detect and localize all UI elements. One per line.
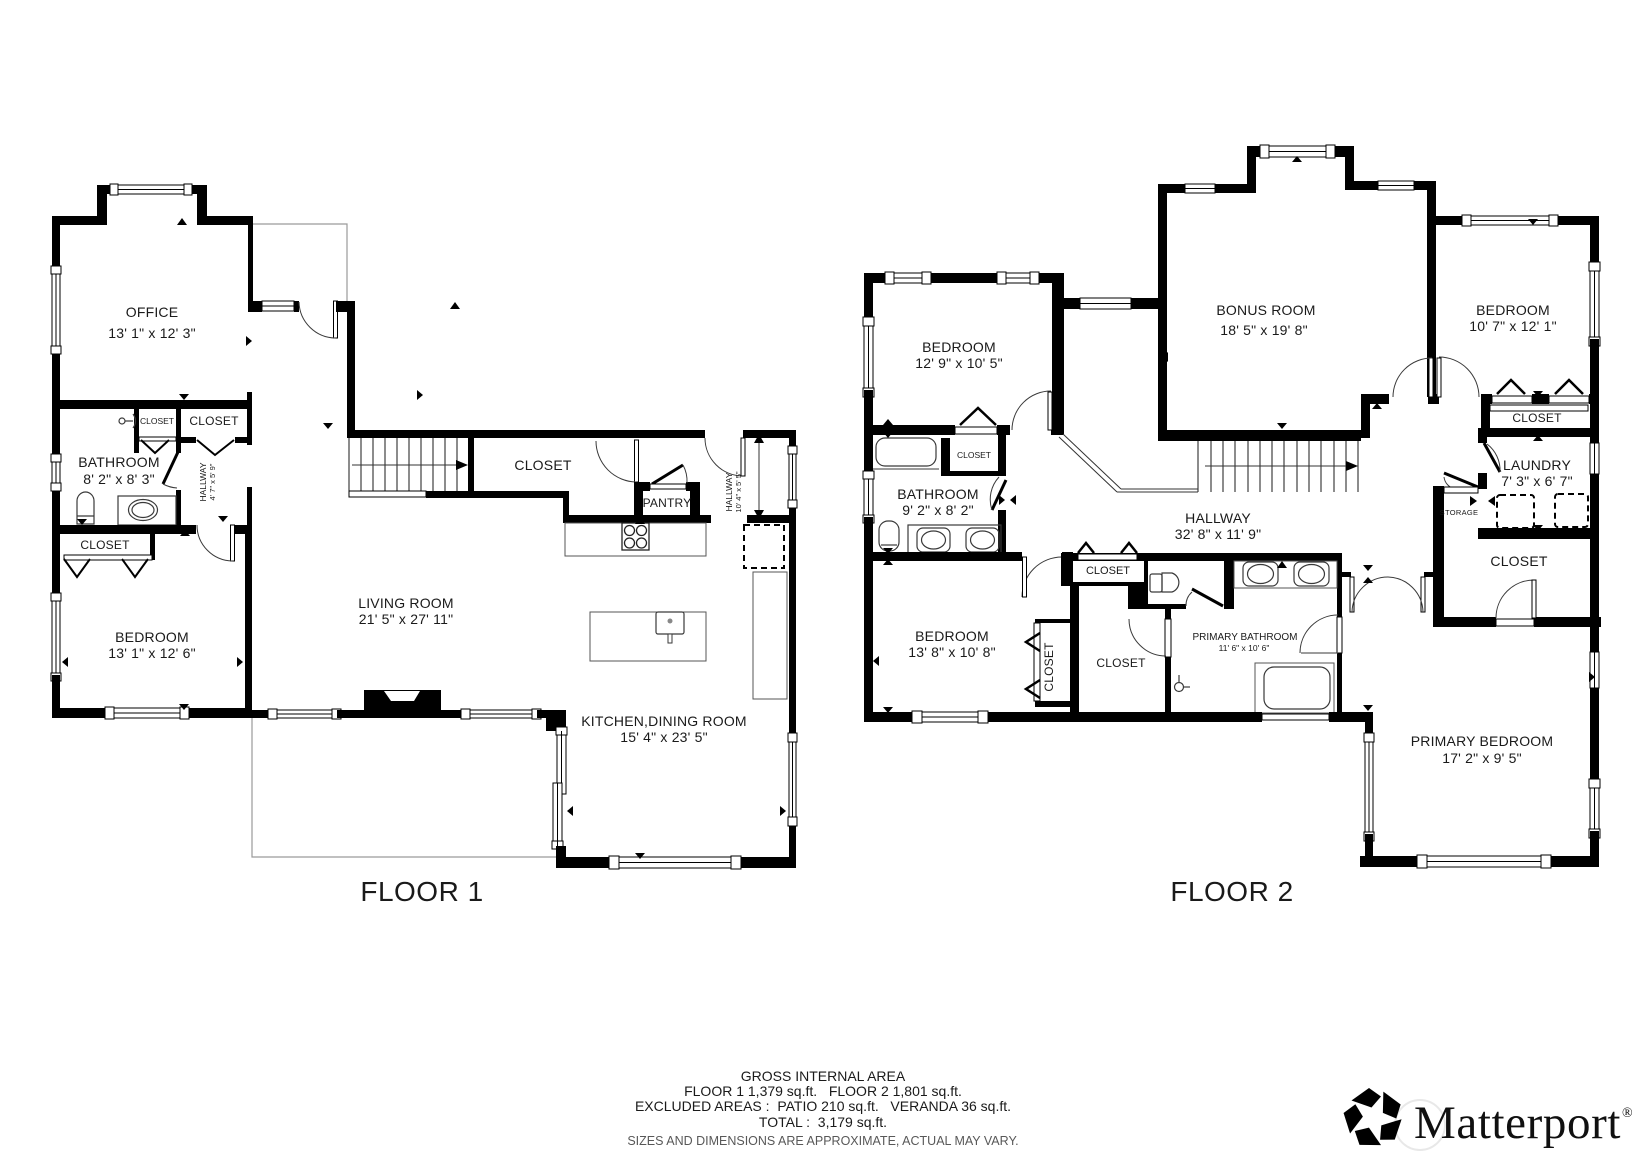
- svg-text:10' 4" x 5' 5": 10' 4" x 5' 5": [734, 471, 743, 512]
- svg-text:10' 7" x 12' 1": 10' 7" x 12' 1": [1469, 318, 1557, 334]
- svg-text:FLOOR 2: FLOOR 2: [1170, 876, 1293, 907]
- svg-text:HALLWAY: HALLWAY: [1185, 510, 1251, 526]
- svg-text:CLOSET: CLOSET: [1512, 411, 1562, 425]
- svg-text:CLOSET: CLOSET: [80, 538, 130, 552]
- svg-text:BEDROOM: BEDROOM: [1476, 302, 1550, 318]
- svg-text:PANTRY: PANTRY: [643, 496, 692, 510]
- svg-text:13' 1" x 12' 6": 13' 1" x 12' 6": [108, 645, 196, 661]
- svg-text:13' 8" x 10' 8": 13' 8" x 10' 8": [908, 644, 996, 660]
- svg-text:12' 9" x 10' 5": 12' 9" x 10' 5": [915, 355, 1003, 371]
- svg-text:HALLWAY: HALLWAY: [198, 462, 208, 501]
- svg-text:FLOOR 1 1,379 sq.ft. FLOOR 2: FLOOR 1 1,379 sq.ft. FLOOR 2 1,801 sq.ft…: [684, 1083, 962, 1099]
- svg-text:LAUNDRY: LAUNDRY: [1503, 457, 1572, 473]
- svg-text:PRIMARY BATHROOM: PRIMARY BATHROOM: [1192, 632, 1297, 643]
- svg-text:HALLWAY: HALLWAY: [724, 472, 734, 511]
- svg-text:KITCHEN,DINING ROOM: KITCHEN,DINING ROOM: [581, 713, 747, 729]
- svg-text:BATHROOM: BATHROOM: [78, 454, 159, 470]
- svg-text:STORAGE: STORAGE: [1440, 508, 1479, 517]
- svg-text:CLOSET: CLOSET: [1042, 642, 1056, 692]
- svg-text:SIZES AND DIMENSIONS ARE APPRO: SIZES AND DIMENSIONS ARE APPROXIMATE, AC…: [627, 1134, 1018, 1148]
- svg-text:13' 1" x 12' 3": 13' 1" x 12' 3": [108, 325, 196, 341]
- svg-text:GROSS INTERNAL AREA: GROSS INTERNAL AREA: [741, 1068, 906, 1084]
- svg-text:8' 2" x 8' 3": 8' 2" x 8' 3": [83, 471, 155, 487]
- svg-text:CLOSET: CLOSET: [1490, 553, 1547, 569]
- svg-text:Matterport: Matterport: [1414, 1097, 1621, 1149]
- svg-text:PRIMARY BEDROOM: PRIMARY BEDROOM: [1411, 733, 1554, 749]
- svg-text:BONUS ROOM: BONUS ROOM: [1216, 302, 1315, 318]
- svg-text:21' 5" x 27' 11": 21' 5" x 27' 11": [359, 611, 454, 627]
- svg-text:18' 5" x 19' 8": 18' 5" x 19' 8": [1220, 322, 1308, 338]
- svg-text:11' 6" x 10' 6": 11' 6" x 10' 6": [1219, 643, 1270, 653]
- svg-text:OFFICE: OFFICE: [126, 304, 179, 320]
- svg-text:CLOSET: CLOSET: [514, 457, 571, 473]
- svg-text:®: ®: [1622, 1106, 1633, 1121]
- svg-text:CLOSET: CLOSET: [1086, 565, 1130, 577]
- svg-text:FLOOR 1: FLOOR 1: [360, 876, 483, 907]
- svg-text:CLOSET: CLOSET: [189, 414, 239, 428]
- svg-text:CLOSET: CLOSET: [140, 416, 174, 426]
- svg-text:17' 2" x 9' 5": 17' 2" x 9' 5": [1442, 750, 1522, 766]
- svg-text:32' 8" x 11' 9": 32' 8" x 11' 9": [1175, 526, 1262, 542]
- svg-text:BEDROOM: BEDROOM: [922, 339, 996, 355]
- svg-text:CLOSET: CLOSET: [957, 450, 991, 460]
- svg-text:7' 3" x 6' 7": 7' 3" x 6' 7": [1501, 473, 1573, 489]
- svg-text:BEDROOM: BEDROOM: [915, 628, 989, 644]
- svg-text:LIVING ROOM: LIVING ROOM: [358, 595, 454, 611]
- svg-text:BATHROOM: BATHROOM: [897, 486, 978, 502]
- svg-text:CLOSET: CLOSET: [1096, 656, 1146, 670]
- svg-text:15' 4" x 23' 5": 15' 4" x 23' 5": [620, 729, 708, 745]
- svg-text:9' 2" x 8' 2": 9' 2" x 8' 2": [902, 502, 974, 518]
- svg-text:EXCLUDED AREAS : PATIO 210 sq: EXCLUDED AREAS : PATIO 210 sq.ft. VERAND…: [635, 1098, 1011, 1114]
- svg-text:4' 7" x 5' 9": 4' 7" x 5' 9": [208, 463, 217, 500]
- svg-text:BEDROOM: BEDROOM: [115, 629, 189, 645]
- svg-text:TOTAL : 3,179 sq.ft.: TOTAL : 3,179 sq.ft.: [759, 1114, 887, 1130]
